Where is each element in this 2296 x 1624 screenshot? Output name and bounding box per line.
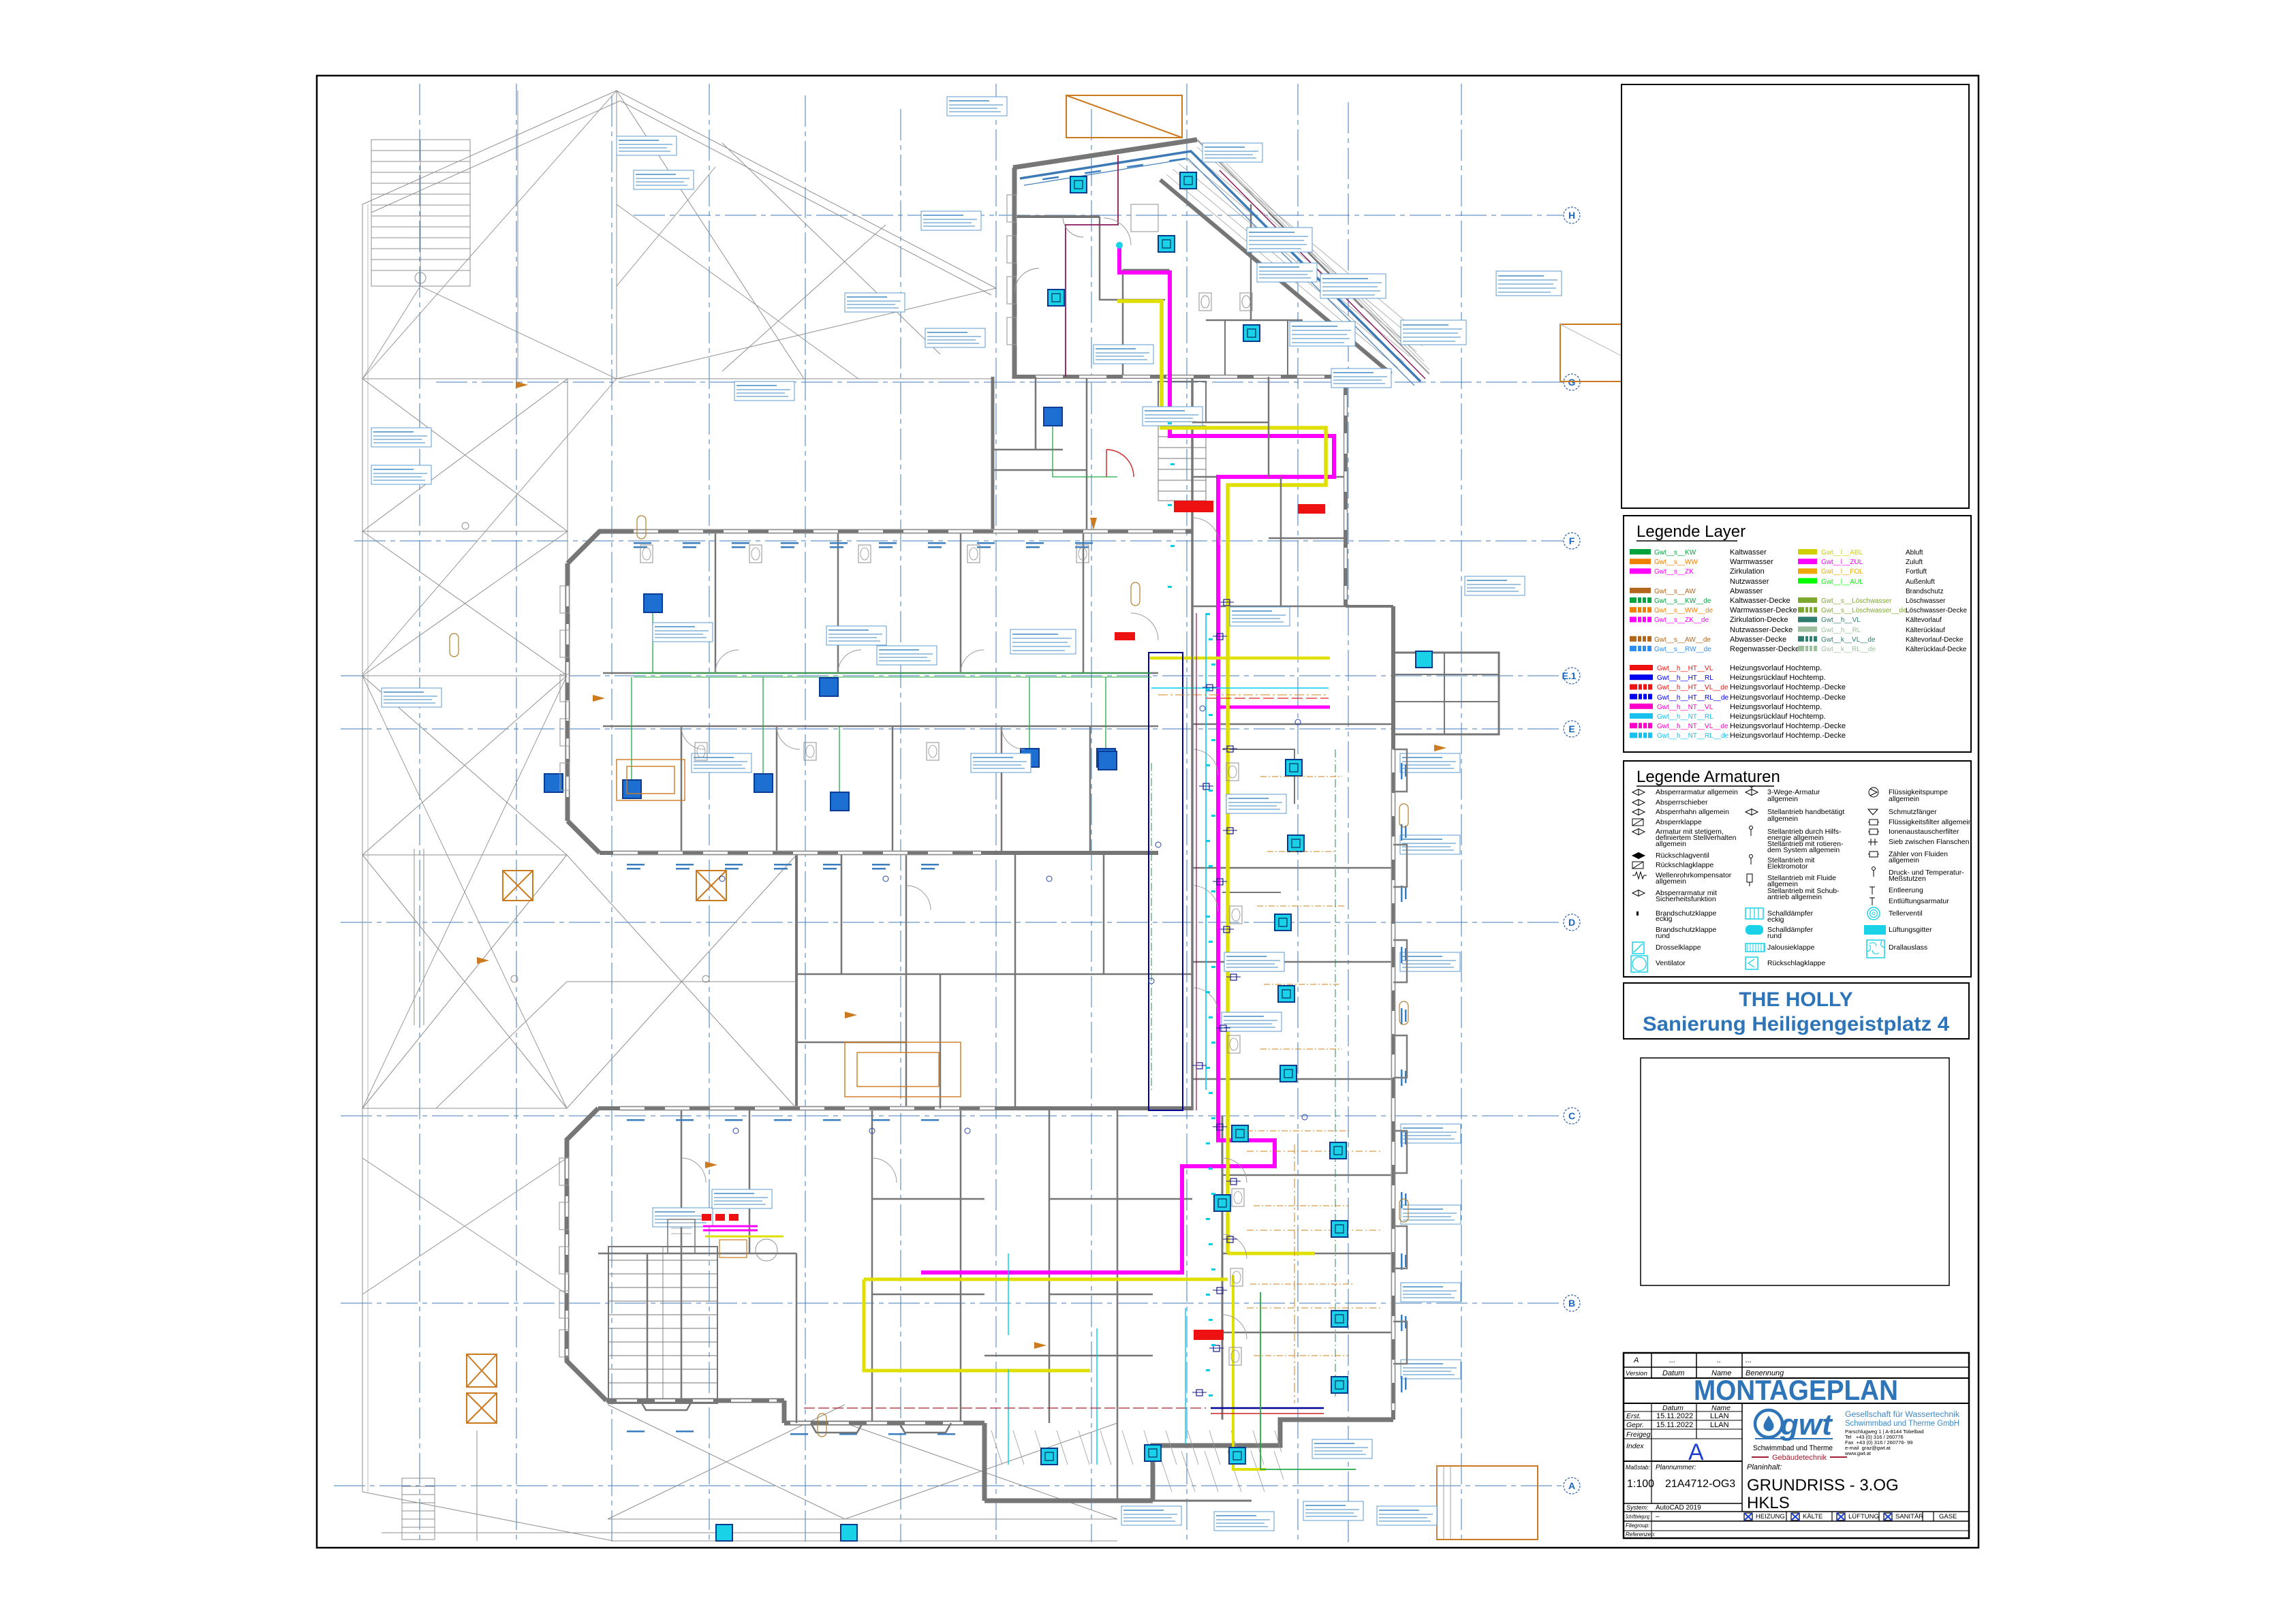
- svg-text:Legende Armaturen: Legende Armaturen: [1636, 768, 1780, 786]
- svg-text:Absperrarmatur allgemein: Absperrarmatur allgemein: [1656, 788, 1738, 796]
- svg-text:15.11.2022: 15.11.2022: [1656, 1412, 1693, 1420]
- svg-text:Heizungsvorlauf Hochtemp.: Heizungsvorlauf Hochtemp.: [1730, 664, 1822, 672]
- svg-text:Gwt__h__VL: Gwt__h__VL: [1821, 616, 1861, 624]
- svg-text:Zirkulation: Zirkulation: [1730, 567, 1765, 576]
- svg-text:Gwt__s__WW__de: Gwt__s__WW__de: [1654, 607, 1713, 614]
- svg-text:Datum: Datum: [1662, 1404, 1684, 1412]
- svg-text:Heizungsrücklauf Hochtemp.: Heizungsrücklauf Hochtemp.: [1730, 713, 1826, 721]
- svg-text:Heizungsrücklauf Hochtemp.: Heizungsrücklauf Hochtemp.: [1730, 674, 1826, 682]
- svg-text:LLAN: LLAN: [1710, 1412, 1729, 1420]
- svg-text:Absperrklappe: Absperrklappe: [1656, 818, 1702, 826]
- svg-text:Schriftbelegung:: Schriftbelegung:: [1626, 1514, 1650, 1520]
- svg-text:E.1: E.1: [1562, 670, 1576, 681]
- svg-text:gwt: gwt: [1780, 1408, 1833, 1441]
- svg-text:Gwt__k__RL__de: Gwt__k__RL__de: [1821, 646, 1876, 653]
- svg-text:Freigeg.: Freigeg.: [1626, 1431, 1653, 1439]
- svg-text:A: A: [1633, 1356, 1639, 1364]
- svg-text:SANITÄR: SANITÄR: [1895, 1513, 1923, 1520]
- svg-text:Gwt__s__KW__de: Gwt__s__KW__de: [1654, 597, 1711, 605]
- svg-text:dem System allgemein: dem System allgemein: [1767, 846, 1840, 854]
- svg-text:Gwt__h__NT__VL: Gwt__h__NT__VL: [1657, 704, 1713, 711]
- svg-text:Kälterücklauf: Kälterücklauf: [1906, 627, 1945, 634]
- svg-text:A: A: [1568, 1480, 1575, 1491]
- svg-text:rund: rund: [1656, 932, 1670, 940]
- svg-text:21A4712-OG3: 21A4712-OG3: [1665, 1478, 1735, 1490]
- svg-text:Gesellschaft für Wassertechnik: Gesellschaft für Wassertechnik: [1845, 1411, 1959, 1419]
- svg-text:Nutzwasser: Nutzwasser: [1730, 578, 1769, 586]
- svg-text:1:100: 1:100: [1627, 1478, 1654, 1490]
- svg-text:Heizungsvorlauf Hochtemp.: Heizungsvorlauf Hochtemp.: [1730, 703, 1822, 711]
- svg-text:Fortluft: Fortluft: [1906, 568, 1927, 576]
- svg-text:Löschwasser-Decke: Löschwasser-Decke: [1906, 607, 1967, 614]
- svg-text:Gwt__s__ZK: Gwt__s__ZK: [1654, 568, 1694, 576]
- svg-text:THE HOLLY: THE HOLLY: [1739, 988, 1852, 1011]
- svg-text:www.gwt.at: www.gwt.at: [1844, 1450, 1872, 1456]
- svg-text:Gwt__h__RL: Gwt__h__RL: [1821, 627, 1861, 634]
- svg-text:Gwt__h__HT__RL: Gwt__h__HT__RL: [1657, 674, 1713, 682]
- svg-text:–: –: [1656, 1513, 1660, 1520]
- svg-text:Version: Version: [1626, 1370, 1647, 1377]
- svg-text:Gwt__s__KW: Gwt__s__KW: [1654, 549, 1696, 557]
- svg-text:15.11.2022: 15.11.2022: [1656, 1421, 1693, 1429]
- svg-text:Ventilator: Ventilator: [1656, 959, 1686, 967]
- svg-text:Tellerventil: Tellerventil: [1889, 909, 1923, 918]
- svg-text:Gebäudetechnik: Gebäudetechnik: [1772, 1454, 1827, 1462]
- svg-text:Meßstutzen: Meßstutzen: [1889, 875, 1926, 883]
- svg-text:AutoCAD 2019: AutoCAD 2019: [1656, 1504, 1701, 1512]
- svg-text:Lüftungsgitter: Lüftungsgitter: [1889, 926, 1932, 934]
- svg-text:..: ..: [1717, 1356, 1721, 1364]
- svg-text:Datum: Datum: [1662, 1369, 1684, 1377]
- svg-text:...: ...: [1669, 1356, 1675, 1364]
- svg-text:Gwt__h__NT__RL: Gwt__h__NT__RL: [1657, 713, 1713, 721]
- svg-text:GRUNDRISS - 3.OG: GRUNDRISS - 3.OG: [1747, 1476, 1899, 1495]
- svg-text:LLAN: LLAN: [1710, 1421, 1729, 1429]
- svg-text:LÜFTUNG: LÜFTUNG: [1848, 1513, 1879, 1520]
- svg-text:allgemein: allgemein: [1656, 840, 1686, 848]
- svg-text:Kälterücklauf-Decke: Kälterücklauf-Decke: [1906, 646, 1967, 653]
- svg-text:Maßstab:: Maßstab:: [1626, 1464, 1650, 1471]
- svg-text:Drallauslass: Drallauslass: [1889, 943, 1927, 952]
- svg-text:Sicherheitsfunktion: Sicherheitsfunktion: [1656, 895, 1716, 903]
- svg-text:Löschwasser: Löschwasser: [1906, 597, 1946, 605]
- svg-text:allgemein: allgemein: [1767, 815, 1798, 823]
- svg-text:Gwt__l__AUL: Gwt__l__AUL: [1821, 578, 1863, 586]
- svg-text:Gwt__l__FOL: Gwt__l__FOL: [1821, 568, 1863, 576]
- svg-text:Sieb zwischen Flanschen: Sieb zwischen Flanschen: [1889, 838, 1970, 846]
- svg-text:Kältevorlauf-Decke: Kältevorlauf-Decke: [1906, 636, 1964, 644]
- svg-text:Gwt__s__AW: Gwt__s__AW: [1654, 588, 1696, 595]
- svg-text:Absperrschieber: Absperrschieber: [1656, 798, 1708, 807]
- svg-text:Entlüftungsarmatur: Entlüftungsarmatur: [1889, 897, 1949, 905]
- svg-text:D: D: [1568, 917, 1575, 928]
- svg-text:Heizungsvorlauf Hochtemp.-Deck: Heizungsvorlauf Hochtemp.-Decke: [1730, 693, 1846, 702]
- svg-text:System:: System:: [1626, 1504, 1649, 1511]
- svg-text:Schwimmbad und Therme GmbH: Schwimmbad und Therme GmbH: [1845, 1420, 1959, 1428]
- svg-text:Zirkulation-Decke: Zirkulation-Decke: [1730, 616, 1788, 624]
- svg-text:Warmwasser: Warmwasser: [1730, 558, 1773, 566]
- svg-text:Absperrhahn allgemein: Absperrhahn allgemein: [1656, 808, 1729, 816]
- svg-text:Referenzen:: Referenzen:: [1626, 1531, 1656, 1537]
- svg-text:allgemein: allgemein: [1656, 877, 1686, 886]
- svg-text:HEIZUNG: HEIZUNG: [1756, 1513, 1785, 1520]
- svg-text:B: B: [1568, 1298, 1575, 1309]
- svg-text:Abluft: Abluft: [1906, 549, 1923, 557]
- svg-text:Gwt__s__ZK__de: Gwt__s__ZK__de: [1654, 616, 1709, 624]
- svg-text:Jalousieklappe: Jalousieklappe: [1767, 943, 1815, 952]
- svg-text:Gwt__h__NT__RL__de: Gwt__h__NT__RL__de: [1657, 732, 1729, 740]
- svg-text:Plannummer:: Plannummer:: [1656, 1464, 1696, 1471]
- svg-text:eckig: eckig: [1656, 915, 1673, 923]
- svg-text:Flüssigkeitsfilter allgemein: Flüssigkeitsfilter allgemein: [1889, 818, 1972, 826]
- svg-text:GASE: GASE: [1939, 1513, 1957, 1520]
- svg-text:allgemein: allgemein: [1767, 795, 1798, 803]
- svg-text:Brandschutz: Brandschutz: [1906, 588, 1944, 595]
- svg-text:Nutzwasser-Decke: Nutzwasser-Decke: [1730, 626, 1793, 634]
- svg-text:Gepr.: Gepr.: [1626, 1421, 1644, 1429]
- svg-text:antrieb allgemein: antrieb allgemein: [1767, 893, 1822, 901]
- svg-text:...: ...: [1746, 1356, 1752, 1364]
- svg-text:H: H: [1568, 210, 1575, 221]
- svg-text:allgemein: allgemein: [1889, 856, 1919, 864]
- svg-text:Warmwasser-Decke: Warmwasser-Decke: [1730, 606, 1797, 614]
- svg-text:Gwt__h__HT__VL: Gwt__h__HT__VL: [1657, 665, 1713, 672]
- svg-text:Heizungsvorlauf Hochtemp.-Deck: Heizungsvorlauf Hochtemp.-Decke: [1730, 732, 1846, 740]
- svg-text:Abwasser-Decke: Abwasser-Decke: [1730, 636, 1786, 644]
- svg-text:C: C: [1568, 1110, 1575, 1121]
- svg-text:Rückschlagventil: Rückschlagventil: [1656, 852, 1709, 860]
- svg-text:Erst.: Erst.: [1626, 1412, 1641, 1420]
- svg-text:Abwasser: Abwasser: [1730, 587, 1763, 595]
- svg-text:Gwt__h__HT__VL__de: Gwt__h__HT__VL__de: [1657, 684, 1728, 691]
- svg-text:Rückschlagklappe: Rückschlagklappe: [1656, 861, 1713, 869]
- svg-text:Gwt__s__Löschwasser: Gwt__s__Löschwasser: [1821, 597, 1892, 605]
- svg-text:Gwt__l__ZUL: Gwt__l__ZUL: [1821, 559, 1863, 566]
- svg-text:Sanierung Heiligengeistplatz 4: Sanierung Heiligengeistplatz 4: [1643, 1013, 1949, 1035]
- svg-text:Drosselklappe: Drosselklappe: [1656, 943, 1701, 952]
- svg-text:eckig: eckig: [1767, 916, 1784, 924]
- svg-text:Schwimmbad und Therme: Schwimmbad und Therme: [1753, 1444, 1833, 1452]
- svg-text:rund: rund: [1767, 932, 1782, 940]
- svg-text:Außenluft: Außenluft: [1906, 578, 1935, 586]
- svg-text:Heizungsvorlauf Hochtemp.-Deck: Heizungsvorlauf Hochtemp.-Decke: [1730, 683, 1846, 691]
- svg-text:Heizungsvorlauf Hochtemp.-Deck: Heizungsvorlauf Hochtemp.-Decke: [1730, 722, 1846, 730]
- svg-text:Kaltwasser: Kaltwasser: [1730, 548, 1767, 557]
- svg-text:Gwt__l__ABL: Gwt__l__ABL: [1821, 549, 1863, 557]
- svg-text:allgemein: allgemein: [1889, 795, 1919, 803]
- svg-text:Kältevorlauf: Kältevorlauf: [1906, 616, 1942, 624]
- svg-text:Name: Name: [1711, 1404, 1731, 1412]
- svg-text:Elektromotor: Elektromotor: [1767, 862, 1808, 871]
- svg-text:Gwt__k__VL__de: Gwt__k__VL__de: [1821, 636, 1876, 644]
- svg-text:Planinhalt:: Planinhalt:: [1747, 1463, 1782, 1471]
- svg-text:Entleerung: Entleerung: [1889, 886, 1923, 894]
- svg-text:Gwt__s__Löschwasser__de: Gwt__s__Löschwasser__de: [1821, 607, 1907, 614]
- svg-text:Rückschlagklappe: Rückschlagklappe: [1767, 959, 1825, 967]
- svg-text:HKLS: HKLS: [1747, 1494, 1790, 1512]
- svg-text:Gwt__s__AW__de: Gwt__s__AW__de: [1654, 636, 1711, 644]
- svg-text:Ionenaustauscherfilter: Ionenaustauscherfilter: [1889, 828, 1959, 836]
- svg-text:Kaltwasser-Decke: Kaltwasser-Decke: [1730, 597, 1790, 605]
- svg-text:KÄLTE: KÄLTE: [1803, 1513, 1822, 1520]
- svg-text:Index: Index: [1626, 1442, 1644, 1450]
- svg-text:Gwt__s__RW__de: Gwt__s__RW__de: [1654, 646, 1711, 653]
- svg-text:F: F: [1569, 535, 1575, 546]
- svg-text:Gwt__s__WW: Gwt__s__WW: [1654, 559, 1698, 566]
- svg-text:Regenwasser-Decke: Regenwasser-Decke: [1730, 645, 1799, 653]
- svg-text:Zuluft: Zuluft: [1906, 559, 1923, 566]
- svg-text:Gwt__h__NT__VL__de: Gwt__h__NT__VL__de: [1657, 723, 1728, 730]
- svg-text:MONTAGEPLAN: MONTAGEPLAN: [1694, 1374, 1898, 1406]
- svg-text:Schmutzfänger: Schmutzfänger: [1889, 808, 1937, 816]
- svg-text:E: E: [1568, 723, 1574, 734]
- svg-text:Gwt__h__HT__RL__de: Gwt__h__HT__RL__de: [1657, 694, 1729, 702]
- svg-text:Legende Layer: Legende Layer: [1636, 522, 1746, 541]
- svg-text:Filegroup:: Filegroup:: [1626, 1522, 1650, 1529]
